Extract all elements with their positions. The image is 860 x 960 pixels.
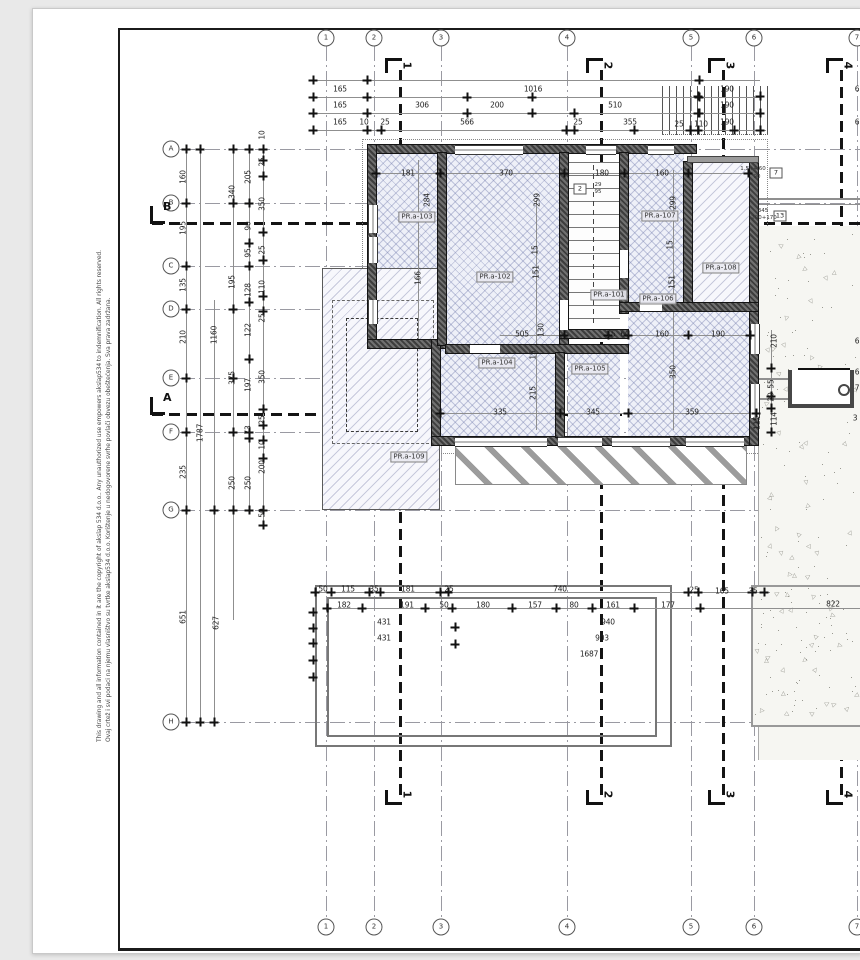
gravel-dot <box>801 640 802 641</box>
dimension-text: 1160 <box>210 326 219 344</box>
dim-tick <box>196 718 205 727</box>
terrace-parapet <box>688 157 758 162</box>
dim-tick <box>767 364 776 373</box>
dimension-text: 627 <box>212 616 221 630</box>
gravel-dot <box>806 612 807 613</box>
grid-bubble-col-4: 4 <box>559 30 576 47</box>
dim-tick <box>363 109 372 118</box>
dimension-text: 15 <box>531 245 540 254</box>
dim-tick <box>696 604 705 613</box>
dimension-text: 115 <box>341 585 355 594</box>
dimension-text: 190 <box>711 330 725 339</box>
gravel-dot <box>761 537 762 538</box>
gravel-dot <box>847 422 848 423</box>
gravel-dot <box>764 382 765 383</box>
gravel-dot <box>852 285 853 286</box>
dim-tick <box>620 169 629 178</box>
grid-bubble-col-7-bottom: 7 <box>849 919 860 936</box>
dimension-text: 355 <box>623 118 637 127</box>
dimension-text: 110 <box>694 120 708 129</box>
grid-bubble-col-2: 2 <box>366 30 383 47</box>
dimension-text: 80 <box>569 601 578 610</box>
gravel-dot <box>784 401 785 402</box>
dimension-text: 340 <box>228 185 237 199</box>
dimension-text: 25 <box>674 120 683 129</box>
gravel-dot <box>823 499 824 500</box>
gravel-dot <box>792 332 793 333</box>
dimension-text: 122 <box>244 323 253 337</box>
retaining-wall-line2 <box>756 204 860 205</box>
dim-tick <box>229 506 238 515</box>
grid-bubble-row-F: F <box>163 424 180 441</box>
dimension-text: 350 <box>258 197 267 211</box>
gravel-dot <box>822 464 823 465</box>
gravel-dot <box>827 578 828 579</box>
gravel-dot <box>758 643 759 644</box>
annotation-text: 90 <box>754 174 761 180</box>
dimension-text: 284 <box>423 193 432 207</box>
gravel-dot <box>845 364 846 365</box>
dimension-text: 165 <box>333 118 347 127</box>
window <box>686 437 744 447</box>
dimension-text: 431 <box>377 618 391 627</box>
dim-tick <box>684 169 693 178</box>
dim-tick <box>309 656 318 665</box>
dim-tick <box>451 640 460 649</box>
gravel-dot <box>775 295 776 296</box>
dim-tick <box>588 604 597 613</box>
dim-tick <box>746 331 755 340</box>
grid-bubble-col-3-bottom: 3 <box>433 919 450 936</box>
dim-tick <box>624 409 633 418</box>
gravel-dot <box>805 476 806 477</box>
gravel-dot <box>776 650 777 651</box>
dimension-text: 182 <box>337 601 351 610</box>
window <box>586 145 616 155</box>
dimension-text: 10 <box>359 118 368 127</box>
gravel-dot <box>795 700 796 701</box>
gravel-stone: ◁ <box>779 691 786 696</box>
dimension-text: 505 <box>515 330 529 339</box>
dimension-text: 15 <box>666 240 675 249</box>
gravel-stone: ◁ <box>768 492 775 497</box>
gravel-dot <box>832 633 833 634</box>
dimension-text: 903 <box>595 634 609 643</box>
dimension-text: 161 <box>606 601 620 610</box>
dimension-text: 181 <box>401 585 415 594</box>
window <box>648 145 674 155</box>
dimension-text: 3 <box>853 414 858 423</box>
dim-tick <box>182 374 191 383</box>
gravel-dot <box>840 468 841 469</box>
dimension-text: 6 <box>855 118 860 127</box>
gravel-dot <box>852 234 853 235</box>
dimension-text: 50 <box>258 508 267 517</box>
dimension-text: 95 <box>244 248 253 257</box>
gravel-dot <box>819 603 820 604</box>
annotation-text: 200+170 <box>751 215 777 221</box>
gravel-dot <box>818 646 819 647</box>
gravel-dot <box>800 652 801 653</box>
dimension-text: 200 <box>490 101 504 110</box>
gravel-dot <box>772 691 773 692</box>
section-label: 2 <box>601 791 614 799</box>
dim-tick <box>730 126 739 135</box>
gravel-dot <box>807 348 808 349</box>
gravel-dot <box>794 705 795 706</box>
dim-tick <box>182 145 191 154</box>
section-marker-1-top: 1 <box>385 58 402 73</box>
gravel-dot <box>806 509 807 510</box>
dim-tick <box>245 355 254 364</box>
dimension-text: 740 <box>553 585 567 594</box>
gravel-dot <box>761 627 762 628</box>
dim-tick <box>309 109 318 118</box>
gravel-dot <box>763 613 764 614</box>
dimension-text: 25 <box>444 585 453 594</box>
section-label: 1 <box>400 791 413 799</box>
section-marker-2-top: 2 <box>586 58 603 73</box>
grid-bubble-row-D: D <box>163 301 180 318</box>
dim-tick <box>182 718 191 727</box>
dimension-text: 25 <box>380 118 389 127</box>
dimension-text: 1787 <box>196 424 205 442</box>
room-label-pr.a-108: PR.a-108 <box>702 263 739 274</box>
dim-line <box>418 160 419 340</box>
gravel-dot <box>770 610 771 611</box>
dimension-text: 205 <box>244 170 253 184</box>
dimension-text: 160 <box>179 170 188 184</box>
gravel-dot <box>777 389 778 390</box>
gravel-dot <box>819 623 820 624</box>
gravel-dot <box>776 448 777 449</box>
dim-tick <box>358 604 367 613</box>
window <box>368 205 378 233</box>
dimension-text: 6 <box>855 85 860 94</box>
dim-tick <box>508 604 517 613</box>
dimension-text: 50 <box>439 601 448 610</box>
dim-tick <box>245 298 254 307</box>
dim-tick <box>756 109 765 118</box>
wall <box>438 153 446 345</box>
gravel-dot <box>829 687 830 688</box>
dimension-text: 210 <box>179 330 188 344</box>
dimension-text: 50 <box>318 585 327 594</box>
dimension-text: 431 <box>377 634 391 643</box>
window <box>455 145 523 155</box>
annotation-text: 1.5+4.60 <box>740 166 766 172</box>
gravel-stone: ◁ <box>806 543 811 550</box>
dimension-text: 190 <box>720 85 734 94</box>
dimension-text: 299 <box>669 196 678 210</box>
gravel-dot <box>787 694 788 695</box>
dim-tick <box>372 169 381 178</box>
dim-tick <box>756 126 765 135</box>
gravel-dot <box>768 332 769 333</box>
dimension-text: 940 <box>601 618 615 627</box>
dimension-text: 15 <box>529 350 538 359</box>
dimension-text: 6 <box>855 368 860 377</box>
dim-tick <box>245 506 254 515</box>
dimension-text: 128 <box>244 283 253 297</box>
dim-tick <box>245 434 254 443</box>
dimension-text: 235 <box>179 465 188 479</box>
gravel-dot <box>762 407 763 408</box>
gravel-dot <box>804 355 805 356</box>
dimension-text: 20 <box>767 392 776 401</box>
room-label-pr.a-109: PR.a-109 <box>390 452 427 463</box>
gravel-stone: ◁ <box>763 658 770 663</box>
dim-tick <box>767 428 776 437</box>
gravel-dot <box>761 624 762 625</box>
window <box>558 437 602 447</box>
door-opening <box>620 250 628 278</box>
annotation-text: 95 <box>595 189 602 195</box>
dim-tick <box>309 639 318 648</box>
gravel-dot <box>770 677 771 678</box>
gravel-stone: ◁ <box>760 707 765 714</box>
dim-tick <box>463 93 472 102</box>
frame-bottom <box>118 948 860 951</box>
dimension-text: 165 <box>333 101 347 110</box>
dim-tick <box>229 428 238 437</box>
dimension-text: 151 <box>668 275 677 289</box>
dimension-text: 375 <box>228 371 237 385</box>
gravel-dot <box>799 680 800 681</box>
gravel-dot <box>770 509 771 510</box>
dimension-text: 350 <box>669 365 678 379</box>
grid-bubble-col-5-bottom: 5 <box>683 919 700 936</box>
gravel-dot <box>798 541 799 542</box>
dim-line <box>313 80 760 81</box>
section-label: 4 <box>841 62 854 70</box>
gravel-dot <box>791 589 792 590</box>
grid-bubble-row-H: H <box>163 714 180 731</box>
dim-tick <box>451 623 460 632</box>
dim-tick <box>245 239 254 248</box>
dimension-text: 210 <box>770 334 779 348</box>
wall <box>684 162 692 310</box>
grid-bubble-col-4-bottom: 4 <box>559 919 576 936</box>
dimension-text: 197 <box>244 378 253 392</box>
dim-tick <box>259 256 268 265</box>
dimension-text: 6 <box>855 337 860 346</box>
dim-tick <box>695 76 704 85</box>
dim-tick <box>210 718 219 727</box>
grid-bubble-col-6: 6 <box>746 30 763 47</box>
dim-tick <box>323 604 332 613</box>
dim-tick <box>245 199 254 208</box>
room-label-pr.a-104: PR.a-104 <box>478 358 515 369</box>
gravel-dot <box>785 592 786 593</box>
gravel-dot <box>773 617 774 618</box>
gravel-dot <box>787 298 788 299</box>
gravel-dot <box>796 627 797 628</box>
dimension-text: 177 <box>661 601 675 610</box>
gravel-dot <box>767 552 768 553</box>
gravel-dot <box>770 251 771 252</box>
dimension-text: 359 <box>685 408 699 417</box>
dim-tick <box>309 126 318 135</box>
gravel-dot <box>849 433 850 434</box>
gravel-dot <box>808 281 809 282</box>
frame-left <box>118 28 120 950</box>
copyright-text-en: This drawing and all information contain… <box>96 250 103 742</box>
gravel-dot <box>785 356 786 357</box>
section-label: 4 <box>841 791 854 799</box>
grid-bubble-col-6-bottom: 6 <box>746 919 763 936</box>
dim-tick <box>436 409 445 418</box>
dimension-text: 180 <box>476 601 490 610</box>
gravel-dot <box>824 253 825 254</box>
dimension-text: 115 <box>753 416 762 430</box>
dim-tick <box>570 109 579 118</box>
gravel-dot <box>778 630 779 631</box>
gravel-dot <box>830 618 831 619</box>
dimension-text: 510 <box>608 101 622 110</box>
dim-tick <box>377 126 386 135</box>
dim-tick <box>259 228 268 237</box>
dimension-text: 566 <box>460 118 474 127</box>
gravel-dot <box>766 694 767 695</box>
dim-tick <box>684 331 693 340</box>
dimension-text: 110 <box>258 280 267 294</box>
dimension-text: 10 <box>258 130 267 139</box>
dimension-text: 160 <box>655 330 669 339</box>
dimension-text: 195 <box>228 275 237 289</box>
gravel-dot <box>767 335 768 336</box>
gravel-dot <box>810 254 811 255</box>
dim-tick <box>363 93 372 102</box>
gravel-dot <box>796 682 797 683</box>
gravel-dot <box>766 556 767 557</box>
gravel-dot <box>824 637 825 638</box>
dimension-text: 25 <box>258 415 267 424</box>
wall <box>556 353 564 437</box>
gravel-dot <box>853 492 854 493</box>
dimension-text: 345 <box>586 408 600 417</box>
dimension-text: 1016 <box>524 85 542 94</box>
gravel-dot <box>855 686 856 687</box>
grid-bubble-col-1: 1 <box>318 30 335 47</box>
gravel-dot <box>773 356 774 357</box>
gravel-dot <box>824 475 825 476</box>
grid-bubble-row-G: G <box>163 502 180 519</box>
gravel-dot <box>816 708 817 709</box>
dim-tick <box>630 126 639 135</box>
gravel-dot <box>826 617 827 618</box>
gravel-dot <box>802 700 803 701</box>
section-marker-4-top: 4 <box>826 58 843 73</box>
dimension-text: 350 <box>258 370 267 384</box>
gravel-dot <box>814 239 815 240</box>
gravel-dot <box>784 465 785 466</box>
wall <box>560 330 628 338</box>
gravel-dot <box>788 280 789 281</box>
gravel-dot <box>846 545 847 546</box>
window-well-drain <box>838 384 850 396</box>
dimension-text: 10 <box>258 440 267 449</box>
gravel-dot <box>799 442 800 443</box>
gravel-dot <box>775 278 776 279</box>
dimension-text: 151 <box>532 265 541 279</box>
dimension-text: 135 <box>179 278 188 292</box>
dimension-text: 165 <box>333 85 347 94</box>
retaining-wall-line <box>756 198 860 200</box>
grid-bubble-col-5: 5 <box>683 30 700 47</box>
dim-tick <box>694 92 703 101</box>
wall <box>368 145 696 153</box>
dimension-text: 822 <box>826 600 840 609</box>
gravel-dot <box>780 317 781 318</box>
dim-tick <box>245 145 254 154</box>
section-label: 3 <box>723 62 736 70</box>
dimension-text: 190 <box>720 101 734 110</box>
dimension-text: 165 <box>715 587 729 596</box>
dim-tick <box>229 305 238 314</box>
canopy-hatched <box>455 443 747 485</box>
dim-tick <box>259 405 268 414</box>
section-label: 1 <box>400 62 413 70</box>
dimension-text: 7 <box>855 384 860 393</box>
dim-tick <box>327 588 336 597</box>
dim-tick <box>756 92 765 101</box>
copyright-text-hr: Ovaj crtež i svi podaci na njemu vlasniš… <box>105 298 112 742</box>
gravel-stone: ◁ <box>830 270 838 275</box>
dimension-text: 25 <box>258 245 267 254</box>
dimension-text: 190 <box>720 118 734 127</box>
dimension-text: 55 <box>767 379 776 388</box>
dimension-text: 651 <box>179 610 188 624</box>
dimension-text: 157 <box>528 601 542 610</box>
dimension-text: 306 <box>415 101 429 110</box>
dim-tick <box>182 506 191 515</box>
dimension-text: 200 <box>258 460 267 474</box>
window <box>612 437 670 447</box>
grid-bubble-row-E: E <box>163 370 180 387</box>
gravel-dot <box>819 675 820 676</box>
gravel-dot <box>820 595 821 596</box>
dimension-text: 15 <box>606 330 615 339</box>
dim-tick <box>309 673 318 682</box>
dim-tick <box>245 262 254 271</box>
dimension-text: 180 <box>595 169 609 178</box>
dim-tick <box>463 109 472 118</box>
gravel-dot <box>765 644 766 645</box>
gravel-dot <box>795 330 796 331</box>
dimension-text: 114 <box>770 412 779 426</box>
dim-tick <box>182 262 191 271</box>
section-marker-B: B <box>150 206 165 224</box>
section-label: 2 <box>601 62 614 70</box>
dim-tick <box>556 409 565 418</box>
gravel-dot <box>789 451 790 452</box>
dim-tick <box>182 199 191 208</box>
gravel-dot <box>846 633 847 634</box>
dim-tick <box>436 169 445 178</box>
dim-tick <box>560 169 569 178</box>
dim-tick <box>259 521 268 530</box>
section-marker-A: A <box>150 397 165 415</box>
section-label: A <box>163 391 172 404</box>
dim-tick <box>528 109 537 118</box>
grid-bubble-col-1-bottom: 1 <box>318 919 335 936</box>
room-label-pr.a-105: PR.a-105 <box>571 364 608 375</box>
dim-tick <box>309 624 318 633</box>
gravel-dot <box>778 288 779 289</box>
gravel-dot <box>830 650 831 651</box>
section-marker-1-bottom: 1 <box>385 790 402 805</box>
